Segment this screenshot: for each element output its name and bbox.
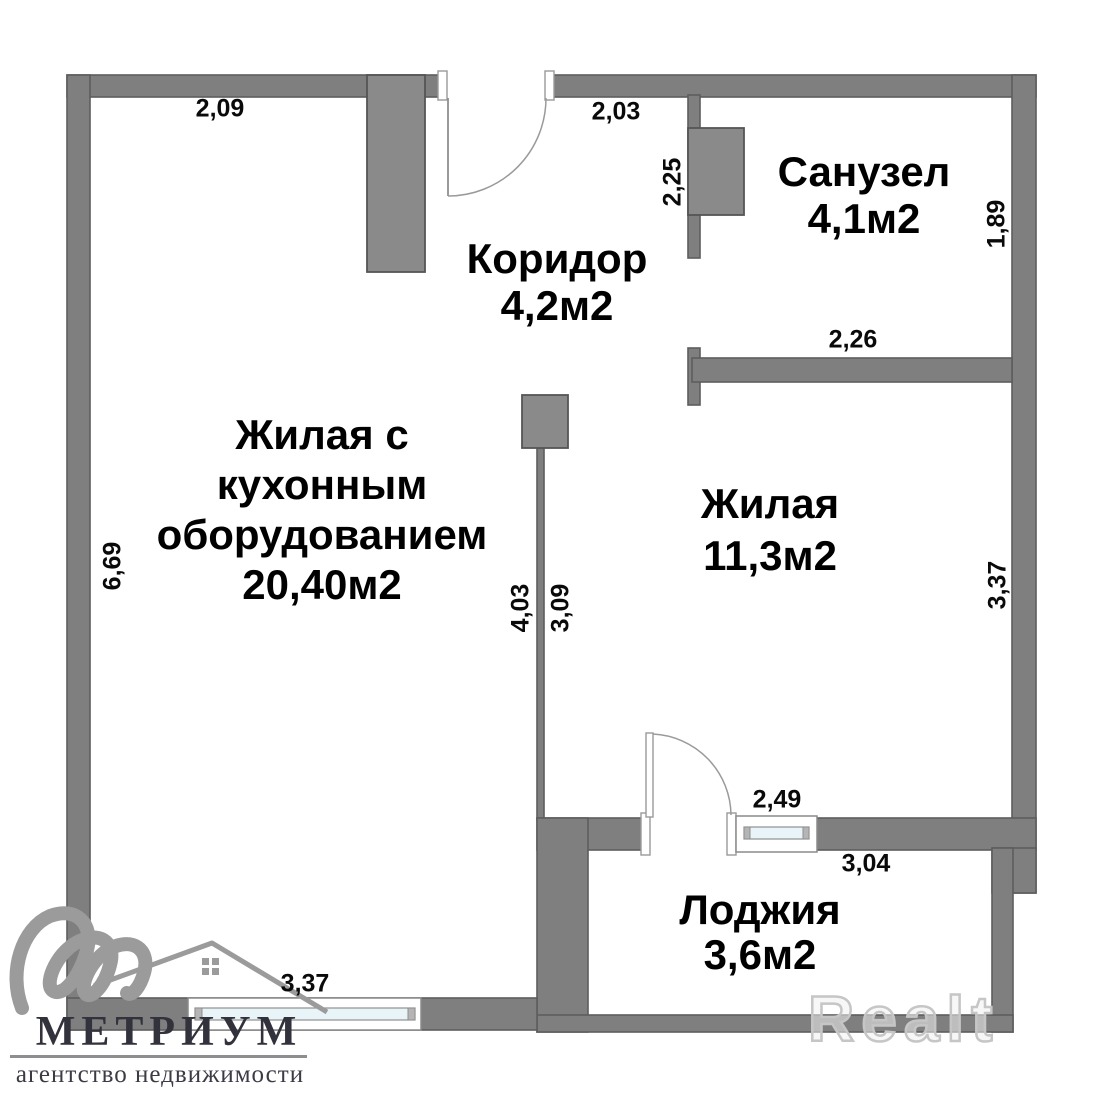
dimension-kitchen-partition-height: 4,03 bbox=[507, 584, 536, 633]
entrance-door-swing-arc bbox=[448, 98, 546, 196]
dimension-loggia-top-width: 3,04 bbox=[842, 850, 891, 879]
left-wall bbox=[67, 75, 90, 1030]
room-name-loggia: Лоджия bbox=[679, 887, 840, 932]
room-area-bathroom: 4,1м2 bbox=[778, 195, 951, 242]
room-name-kitchen-living-line3: оборудованием bbox=[157, 510, 488, 560]
entrance-door-jamb-left bbox=[438, 71, 447, 100]
room-area-living: 11,3м2 bbox=[701, 530, 839, 582]
room-name-corridor: Коридор bbox=[467, 235, 648, 282]
logo-house-window-pane bbox=[212, 968, 219, 975]
loggia-window-glass bbox=[744, 827, 809, 839]
room-label-living: Жилая 11,3м2 bbox=[701, 478, 839, 582]
corridor-pillar bbox=[367, 75, 425, 272]
agency-logo-tagline: агентство недвижимости bbox=[12, 1061, 308, 1089]
loggia-door-jamb-right bbox=[727, 813, 736, 855]
loggia-door bbox=[641, 733, 736, 855]
room-name-living: Жилая bbox=[701, 478, 839, 530]
center-column bbox=[522, 395, 568, 448]
room-label-corridor: Коридор 4,2м2 bbox=[467, 235, 648, 329]
top-wall-right-segment bbox=[552, 75, 1036, 97]
room-label-bathroom: Санузел 4,1м2 bbox=[778, 148, 951, 242]
logo-house-window bbox=[202, 958, 219, 975]
entrance-door bbox=[438, 71, 554, 196]
loggia-window-cap-right bbox=[803, 827, 809, 839]
logo-house-window-pane bbox=[212, 958, 219, 965]
dimension-corridor-top-width: 2,03 bbox=[592, 98, 641, 127]
dimension-living-partition-height: 3,09 bbox=[547, 584, 576, 633]
loggia-window-cap-left bbox=[744, 827, 750, 839]
dimension-kitchen-bottom-width: 3,37 bbox=[281, 970, 330, 999]
agency-logo-rule bbox=[10, 1055, 307, 1058]
dimension-kitchen-top-width: 2,09 bbox=[196, 95, 245, 124]
entrance-door-jamb-right bbox=[545, 71, 554, 100]
room-name-kitchen-living-line1: Жилая с bbox=[157, 410, 488, 460]
room-area-corridor: 4,2м2 bbox=[467, 282, 648, 329]
loggia-door-swing-arc bbox=[653, 734, 731, 815]
room-area-loggia: 3,6м2 bbox=[679, 932, 840, 977]
dimension-bathroom-right-height: 1,89 bbox=[983, 200, 1012, 249]
right-wall bbox=[1012, 75, 1036, 893]
loggia-left-wall bbox=[537, 818, 588, 1032]
dimension-corridor-right-height: 2,25 bbox=[659, 158, 688, 207]
room-name-bathroom: Санузел bbox=[778, 148, 951, 195]
realt-watermark: Realt bbox=[808, 982, 1000, 1056]
room-name-kitchen-living-line2: кухонным bbox=[157, 460, 488, 510]
kitchen-window-cap-right bbox=[408, 1008, 415, 1020]
logo-house-window-pane bbox=[202, 958, 209, 965]
floor-plan-canvas: Санузел 4,1м2 Коридор 4,2м2 Жилая с кухо… bbox=[0, 0, 1100, 1097]
room-area-kitchen-living: 20,40м2 bbox=[157, 560, 488, 610]
loggia-top-wall-right bbox=[813, 818, 1036, 850]
dimension-bathroom-bottom-width: 2,26 bbox=[829, 326, 878, 355]
dimension-living-right-height: 3,37 bbox=[984, 561, 1013, 610]
vent-shaft-block bbox=[688, 128, 744, 215]
dimension-loggia-door-width: 2,49 bbox=[753, 786, 802, 815]
room-label-kitchen-living: Жилая с кухонным оборудованием 20,40м2 bbox=[157, 410, 488, 610]
dimension-kitchen-left-height: 6,69 bbox=[99, 542, 128, 591]
agency-logo-name: МЕТРИУМ bbox=[28, 1008, 310, 1056]
loggia-window bbox=[736, 816, 817, 852]
loggia-door-jamb-left bbox=[641, 813, 650, 855]
logo-house-window-pane bbox=[202, 968, 209, 975]
room-label-loggia: Лоджия 3,6м2 bbox=[679, 887, 840, 977]
loggia-door-leaf bbox=[646, 733, 653, 817]
room-partition-wall bbox=[537, 448, 544, 820]
logo-script-m bbox=[17, 913, 146, 1008]
entrance-door-opening bbox=[447, 74, 545, 98]
bathroom-bottom-wall bbox=[692, 358, 1012, 382]
